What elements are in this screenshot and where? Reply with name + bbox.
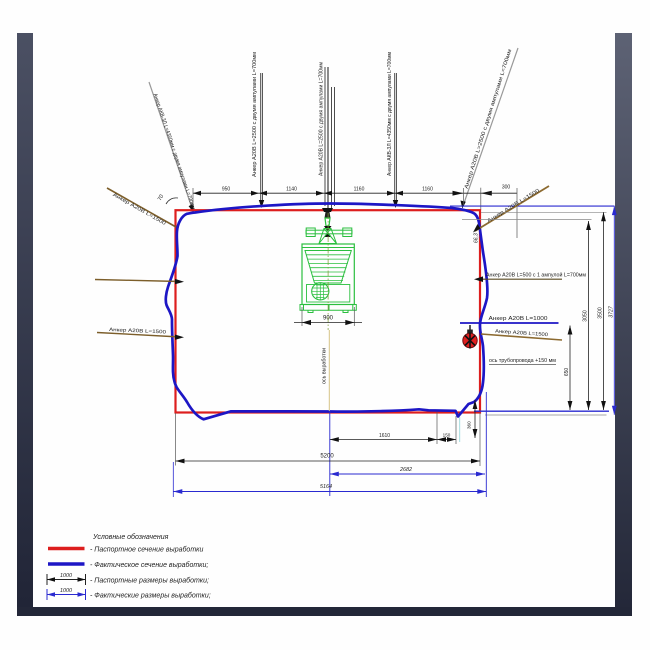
svg-text:- Фактическое сечение выработк: - Фактическое сечение выработки; — [90, 561, 208, 569]
svg-text:300: 300 — [502, 185, 511, 191]
svg-text:1000: 1000 — [60, 573, 72, 579]
svg-text:650: 650 — [564, 368, 570, 377]
svg-text:Анкер А20В L=500 с 1 ампулой L: Анкер А20В L=500 с 1 ампулой L=700мм — [486, 272, 587, 279]
svg-text:- Паспортные размеры выработки: - Паспортные размеры выработки; — [90, 577, 209, 585]
svg-text:1610: 1610 — [379, 433, 390, 439]
svg-text:5164: 5164 — [320, 484, 332, 490]
svg-text:900: 900 — [323, 316, 334, 322]
svg-text:Анкер АКВ-3Л L=4350мм с двумя: Анкер АКВ-3Л L=4350мм с двумя ампулами L… — [387, 52, 393, 176]
svg-text:1140: 1140 — [286, 187, 297, 193]
svg-text:360: 360 — [467, 421, 472, 429]
svg-text:66,3: 66,3 — [474, 233, 480, 243]
svg-text:5200: 5200 — [320, 454, 334, 460]
svg-text:ось выработки: ось выработки — [322, 348, 328, 384]
svg-text:Анкер А20В L=2500 с двумя ампу: Анкер А20В L=2500 с двумя ампулами L=700… — [319, 62, 325, 176]
svg-text:1000: 1000 — [60, 588, 72, 594]
svg-text:Анкер А20В L=1000: Анкер А20В L=1000 — [489, 316, 548, 322]
svg-text:- Паспортное сечение выработки: - Паспортное сечение выработки — [90, 546, 203, 554]
svg-text:2682: 2682 — [399, 467, 412, 473]
svg-text:1160: 1160 — [422, 187, 433, 193]
svg-text:3500: 3500 — [598, 307, 604, 319]
svg-text:150: 150 — [443, 433, 451, 438]
svg-text:Анкер А20В L=2500 с двумя ампу: Анкер А20В L=2500 с двумя ампулами L=700… — [252, 52, 258, 177]
svg-text:- Фактические размеры выработк: - Фактические размеры выработки; — [90, 592, 211, 600]
svg-text:1160: 1160 — [354, 187, 365, 193]
svg-text:3727: 3727 — [609, 305, 615, 318]
svg-text:950: 950 — [222, 187, 231, 193]
svg-text:3050: 3050 — [583, 310, 589, 322]
svg-text:ось трубопровода +150 мм: ось трубопровода +150 мм — [489, 358, 557, 364]
svg-text:Условные обозначения: Условные обозначения — [92, 533, 169, 541]
